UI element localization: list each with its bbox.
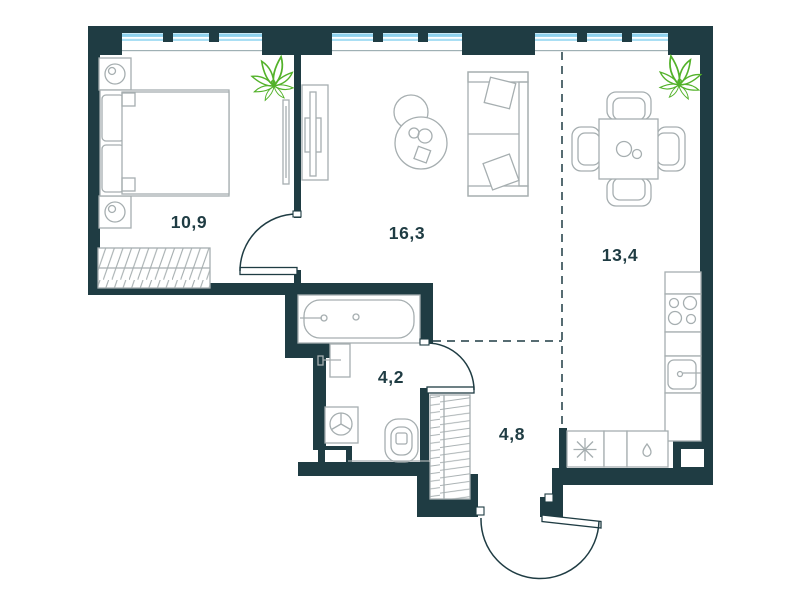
pillow [102,95,124,141]
window-sill-line [535,50,668,51]
window-mullion [418,32,428,42]
wall-top-band [88,26,712,33]
living-tv [310,92,316,176]
wall-pier-2 [262,26,332,55]
entrance-door-leaf [542,515,601,528]
entrance-door-arc [481,518,599,579]
window-3 [535,32,668,51]
window-glass-line [122,39,262,41]
door-hinge [476,507,484,515]
window-mullion [163,32,173,42]
wall-bath-left-lower [313,358,326,450]
room-area-label-bathroom: 4,2 [378,367,404,387]
window-mullion [622,32,632,42]
bathroom-door-leaf [427,387,474,393]
room-area-label-dining: 13,4 [602,245,638,265]
floor-plan-canvas: 10,9 16,3 13,4 4,2 4,8 [0,0,800,600]
door-hinge [545,494,553,502]
window-sill-line [122,50,262,51]
room-area-label-living: 16,3 [389,223,425,243]
wall-bath-bottom [298,462,433,476]
door-hinge [420,339,429,345]
window-sill-line [332,50,462,51]
window-glass-line [535,34,668,37]
wall-right [700,26,713,468]
wall-bedroom-living [294,52,301,218]
kitchen-counter-appliance [627,431,668,467]
bedroom-furniture [98,58,289,288]
wall-kitchen-bottom [552,468,713,485]
window-1 [122,32,262,51]
sofa [468,72,528,196]
hall-closet-hatching [430,395,470,499]
bathroom-door-arc [427,343,474,390]
wall-hall-left [420,388,429,488]
kitchen-counter [665,272,701,294]
kitchen-counter [604,431,627,467]
window-2 [332,32,462,51]
window-mullion [373,32,383,42]
plant-icon [655,53,705,103]
toilet [385,419,418,462]
room-area-label-hallway: 4,8 [499,424,525,444]
window-glass-line [535,39,668,41]
window-glass-line [122,34,262,37]
kitchen-counter [665,393,701,441]
wall-pier-3 [462,26,535,55]
nightstand [99,58,131,90]
kitchen-units [567,272,701,467]
window-mullion [209,32,219,42]
bedroom-door-leaf [240,268,297,275]
window-glass-line [332,34,462,37]
door-hinge [293,211,301,217]
hallway-fixtures [430,395,470,499]
kitchen-counter [665,332,701,356]
living-room-furniture [302,72,528,196]
window-mullion [577,32,587,42]
room-area-label-bedroom: 10,9 [171,212,207,232]
bed-blanket [122,92,229,194]
plant-icon [247,53,298,104]
windows [122,32,668,51]
wall-bath-right-upper [420,283,433,343]
bedroom-door-arc [240,214,297,271]
window-glass-line [332,39,462,41]
dining-set [572,92,685,206]
floor-plan-page: 10,9 16,3 13,4 4,2 4,8 [0,0,800,600]
wall-kitchen-divider-stub [559,428,567,470]
dining-table [599,119,658,179]
sofa-pillow [484,77,516,109]
nightstand [99,196,131,228]
corner-niche [681,449,704,467]
pillow [102,145,124,192]
